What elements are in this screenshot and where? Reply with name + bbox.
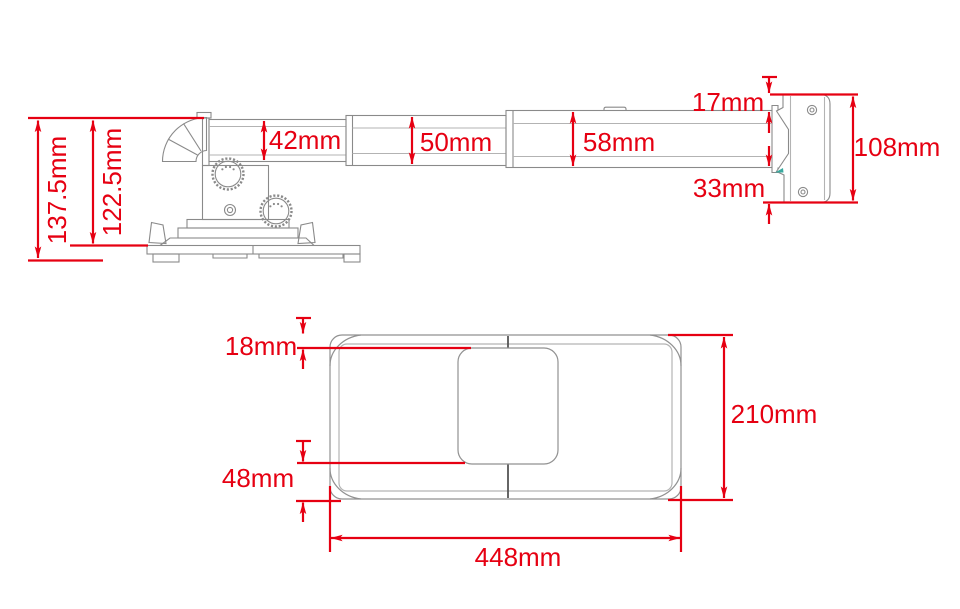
dim-label-wall-plate-height: 108mm [854, 134, 941, 160]
corner-pad [330, 468, 361, 499]
wall-plate [775, 95, 830, 203]
dim-label-base-top-height: 122.5mm [99, 128, 125, 236]
elbow-joint [163, 113, 212, 166]
dim-label-arm-section-3: 58mm [583, 129, 655, 155]
adjustment-knob [213, 159, 244, 190]
dim-label-plate-width: 448mm [475, 544, 562, 570]
adjustment-knob [261, 196, 292, 227]
swivel-base [149, 220, 315, 246]
center-bracket-block [458, 348, 558, 464]
dim-label-wall-plate-top-offset: 17mm [692, 89, 764, 115]
dim-label-bracket-top-inset: 18mm [225, 333, 297, 359]
dim-label-wall-plate-bottom-offset: 33mm [693, 175, 765, 201]
mount-head-bracket [203, 159, 292, 227]
dim-label-arm-section-1: 42mm [269, 127, 341, 153]
diagram-drawing [0, 0, 960, 609]
dim-label-plate-depth: 210mm [731, 401, 818, 427]
dim-label-bracket-bottom-inset: 48mm [222, 465, 294, 491]
corner-pad [330, 335, 361, 366]
dim-label-arm-section-2: 50mm [420, 129, 492, 155]
top-view-drawing [330, 335, 681, 499]
dim-label-overall-height: 137.5mm [44, 136, 70, 244]
corner-pad [650, 468, 681, 499]
base-plate-side [147, 246, 360, 263]
corner-pad [650, 335, 681, 366]
mount-dimension-diagram: 137.5mm 122.5mm 42mm 50mm 58mm 17mm 33mm… [0, 0, 960, 609]
